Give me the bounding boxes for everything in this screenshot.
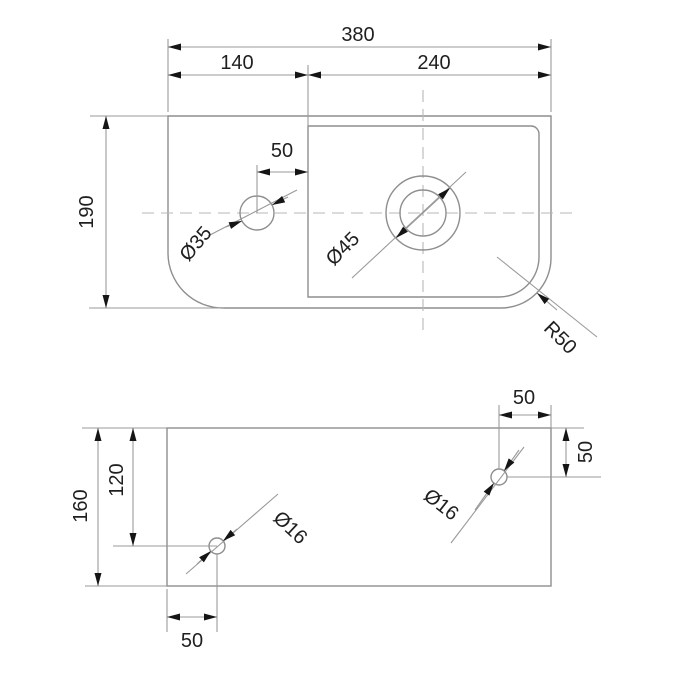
leader-arrow [537, 293, 557, 310]
dim-height-label: 160 [70, 489, 92, 522]
leader-arrow [475, 483, 494, 510]
leader-arrow [504, 450, 519, 471]
bottom-view: 160 120 50 50 50 Ø16 Ø16 [70, 387, 601, 652]
dim-right-hole-from-top-label: 50 [575, 441, 597, 463]
mounting-hole-right [491, 469, 507, 485]
dim-right-section-label: 240 [417, 52, 450, 74]
leader-diameter-45 [352, 172, 466, 278]
radius-50-label: R50 [539, 317, 581, 359]
leader-arrow [197, 551, 211, 564]
dim-left-hole-offset-label: 50 [181, 630, 203, 652]
dim-left-section-label: 140 [220, 52, 253, 74]
dim-hole-offset-label: 50 [271, 140, 293, 162]
drawing-svg: 380 140 240 50 190 Ø35 Ø45 R50 [0, 0, 674, 674]
dim-right-hole-offset-label: 50 [513, 387, 535, 409]
diameter-45-label: Ø45 [322, 228, 364, 270]
top-view: 380 140 240 50 190 Ø35 Ø45 R50 [76, 24, 597, 359]
technical-drawing: 380 140 240 50 190 Ø35 Ø45 R50 [0, 0, 674, 674]
bottom-view-outline [167, 428, 551, 586]
dim-total-width-label: 380 [341, 24, 374, 46]
dim-hole-from-top-label: 120 [106, 463, 128, 496]
diameter-35-label: Ø35 [175, 222, 216, 265]
leader-arrow [226, 221, 242, 227]
dim-height-label: 190 [76, 195, 98, 228]
diameter-16-right-label: Ø16 [419, 485, 462, 526]
leader-diameter-16-right [451, 447, 524, 543]
diameter-16-left-label: Ø16 [269, 507, 312, 549]
top-view-outline [168, 116, 551, 308]
leader-arrow [223, 529, 237, 541]
